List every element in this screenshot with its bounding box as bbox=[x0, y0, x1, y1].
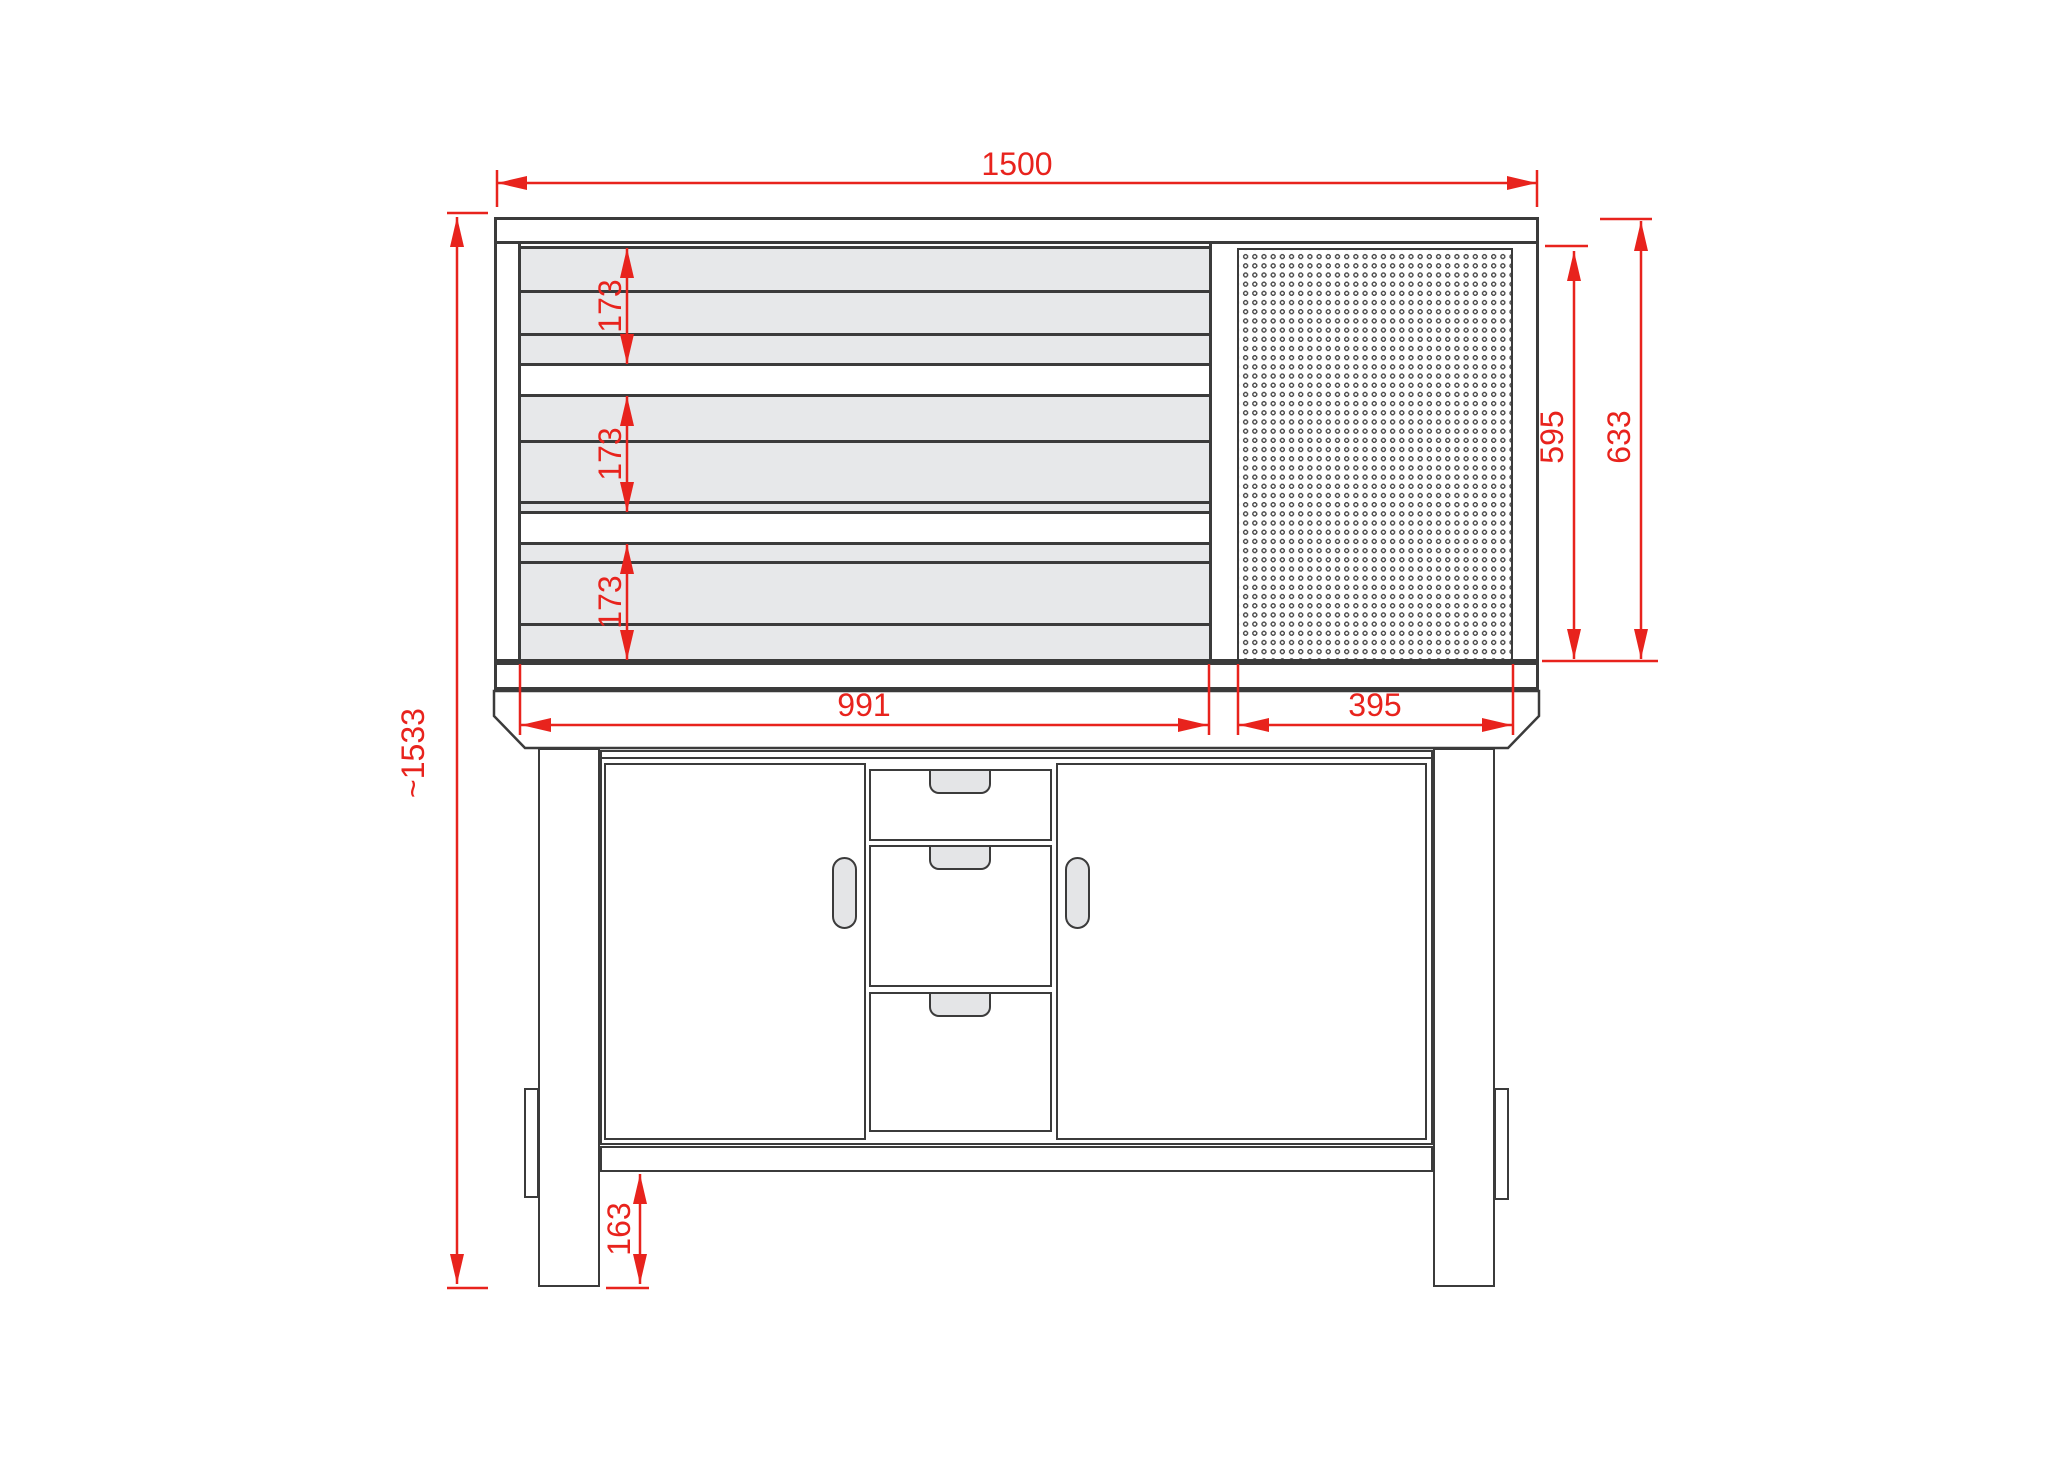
arrowhead bbox=[450, 217, 464, 247]
dimension-overlay bbox=[0, 0, 2069, 1463]
technical-drawing-canvas: 1500 ~1533 173 173 173 595 633 991 395 1… bbox=[0, 0, 2069, 1463]
arrowhead bbox=[1567, 629, 1581, 659]
arrowhead bbox=[1567, 251, 1581, 281]
arrowhead bbox=[1634, 629, 1648, 659]
label-wall-unit-height: 633 bbox=[1601, 362, 1637, 512]
dim-overall-height bbox=[447, 213, 488, 1288]
label-slat-group-top: 173 bbox=[592, 266, 628, 346]
label-overall-height: ~1533 bbox=[395, 678, 431, 828]
label-slat-group-middle: 173 bbox=[592, 414, 628, 494]
arrowhead bbox=[1634, 221, 1648, 251]
arrowhead bbox=[1507, 176, 1537, 190]
label-overall-width: 1500 bbox=[942, 146, 1092, 182]
label-pegboard-height: 595 bbox=[1534, 362, 1570, 512]
label-pegboard-width: 395 bbox=[1300, 687, 1450, 723]
label-slat-group-bottom: 173 bbox=[592, 562, 628, 642]
label-floor-clearance: 163 bbox=[601, 1189, 637, 1269]
arrowhead bbox=[450, 1254, 464, 1284]
arrowhead bbox=[497, 176, 527, 190]
label-slat-panel-width: 991 bbox=[789, 687, 939, 723]
